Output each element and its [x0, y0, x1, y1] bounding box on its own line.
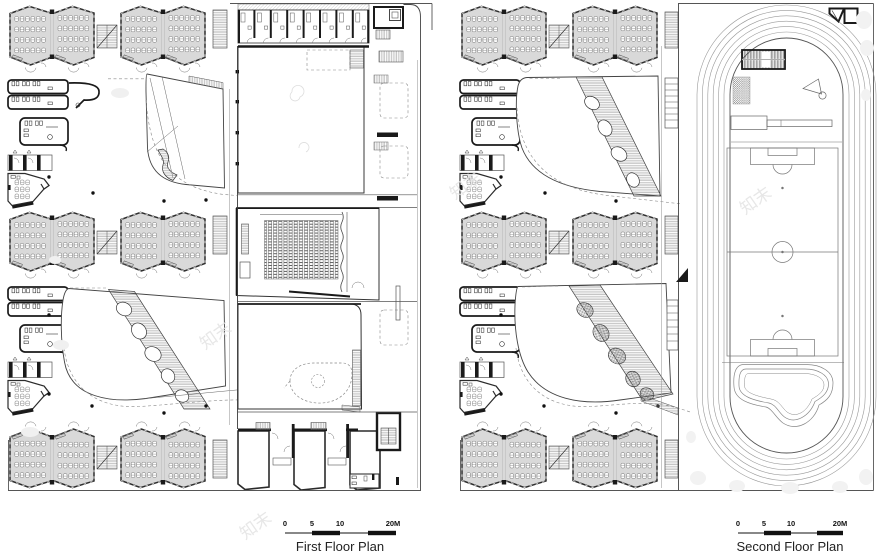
- svg-text:10: 10: [787, 519, 795, 528]
- svg-text:First Floor Plan: First Floor Plan: [296, 539, 384, 554]
- svg-text:0: 0: [283, 519, 287, 528]
- svg-text:20M: 20M: [833, 519, 848, 528]
- svg-text:Second Floor Plan: Second Floor Plan: [737, 539, 844, 554]
- svg-text:5: 5: [310, 519, 314, 528]
- svg-text:0: 0: [736, 519, 740, 528]
- svg-text:10: 10: [336, 519, 344, 528]
- svg-text:20M: 20M: [386, 519, 401, 528]
- svg-text:5: 5: [762, 519, 766, 528]
